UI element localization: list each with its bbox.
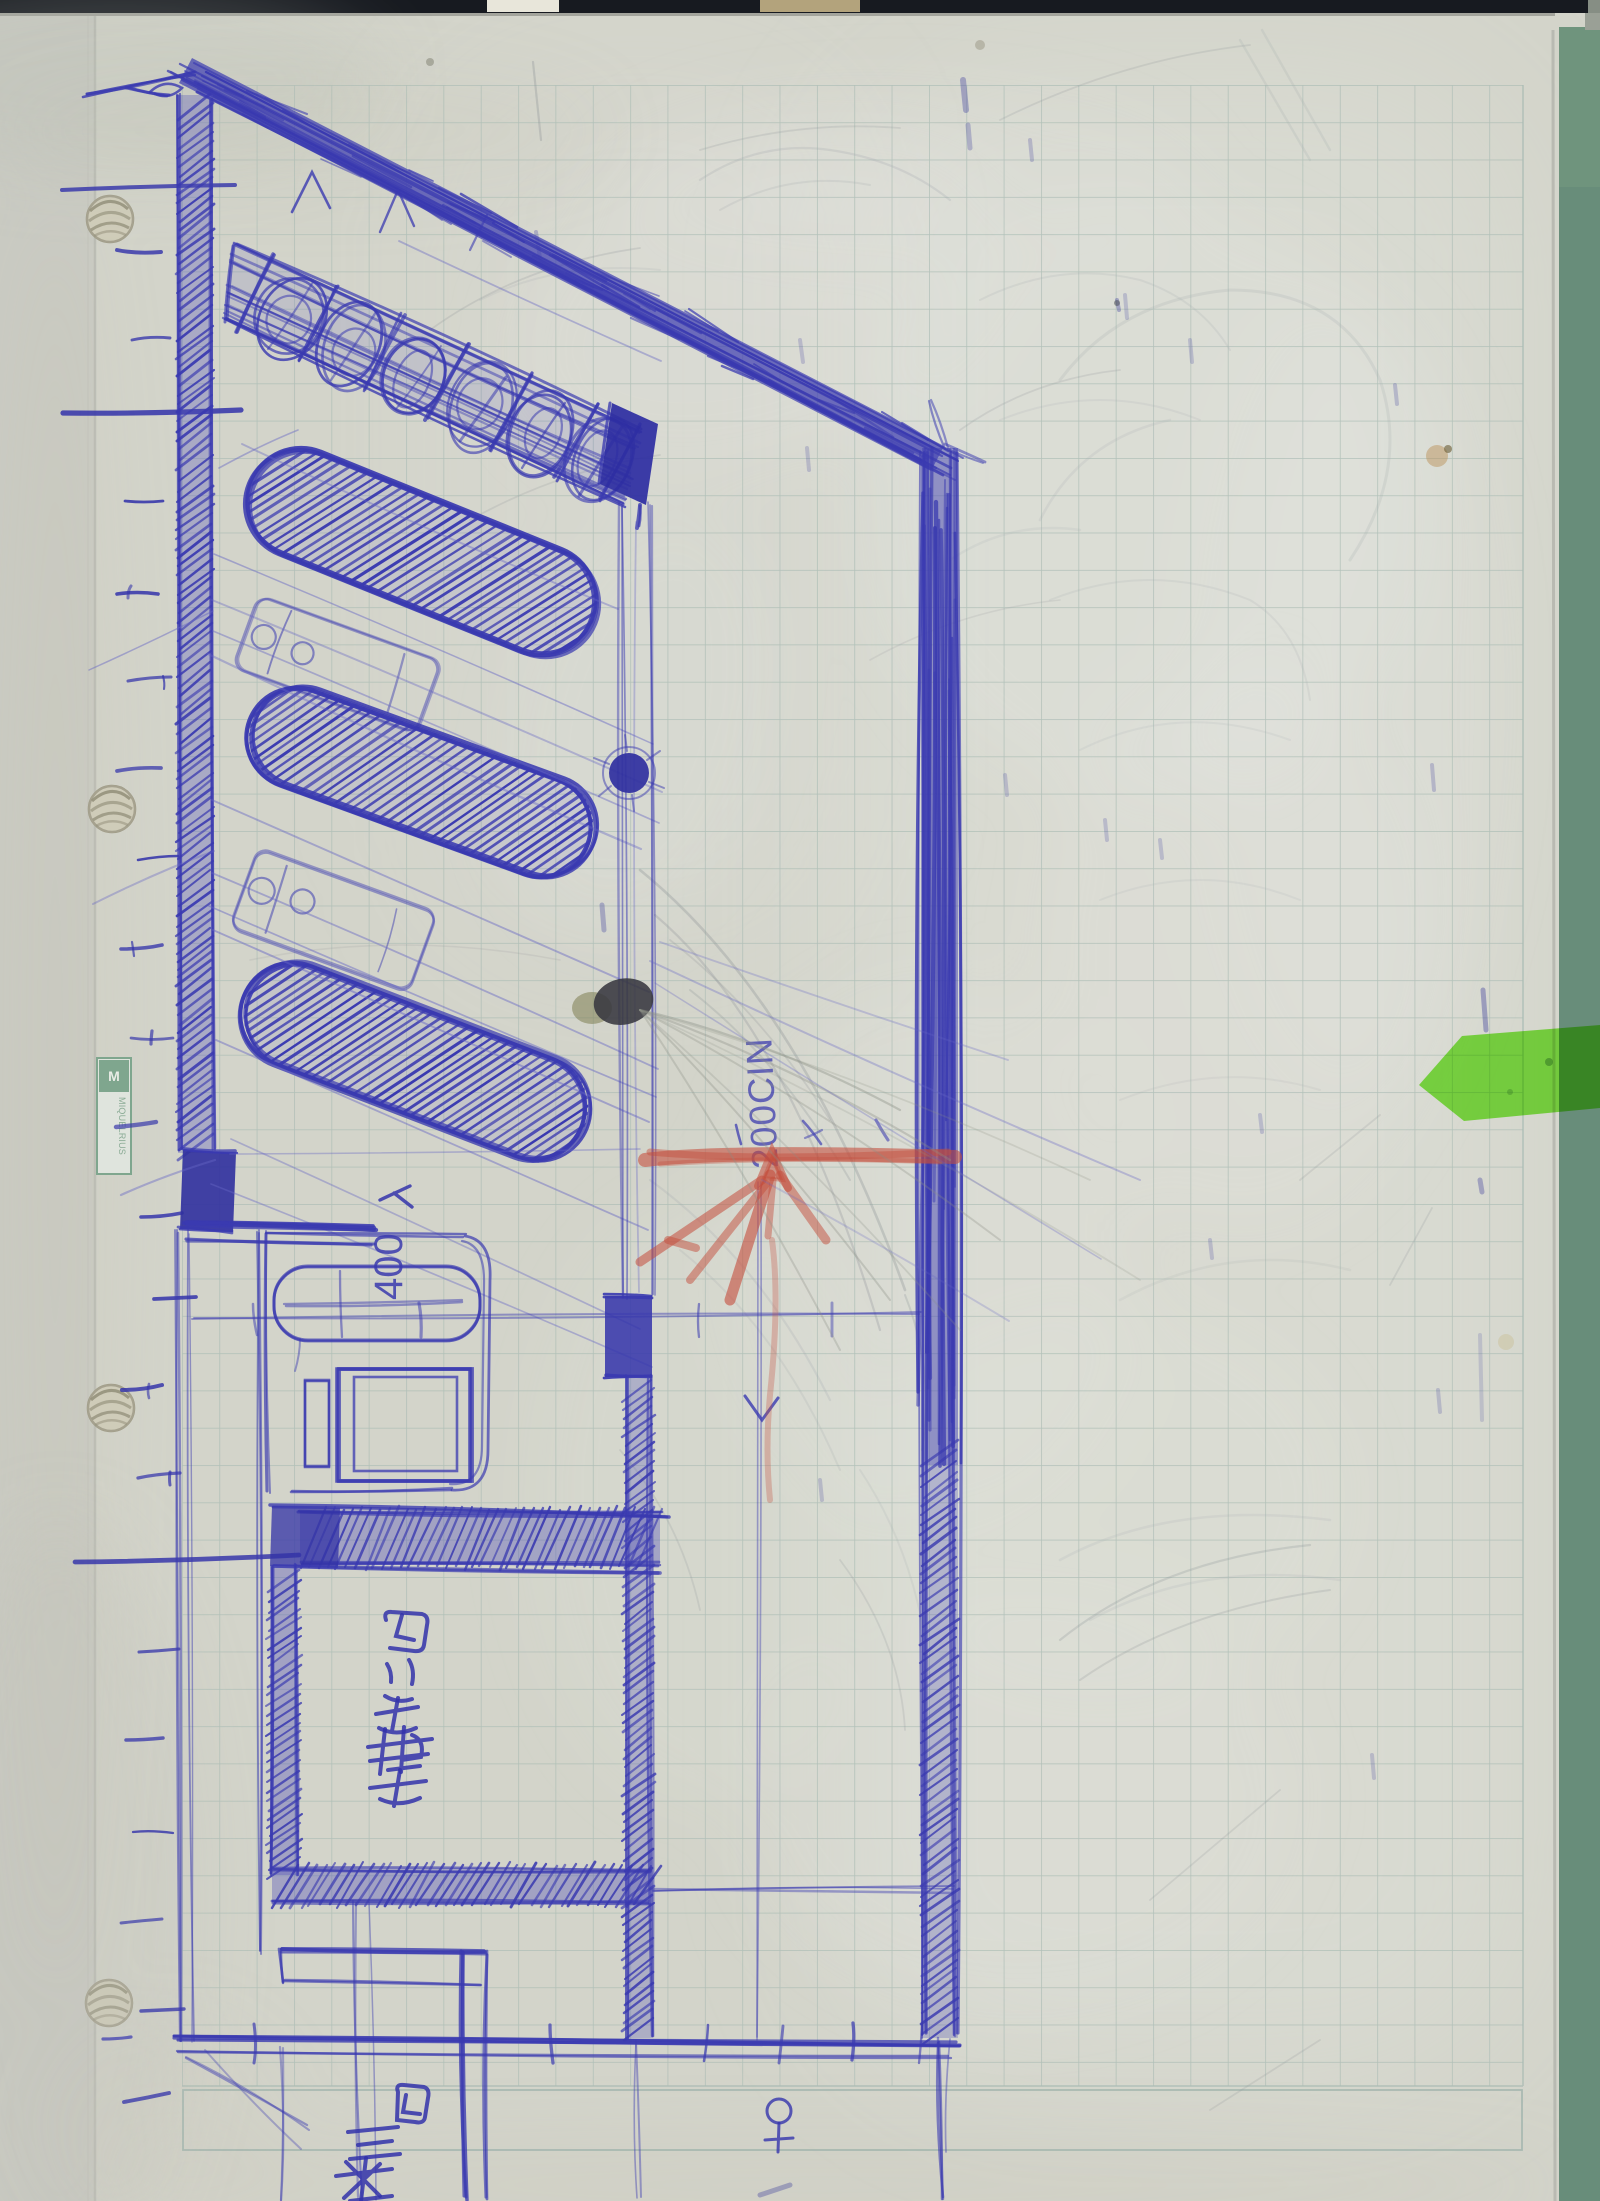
svg-text:M: M [108, 1068, 120, 1084]
